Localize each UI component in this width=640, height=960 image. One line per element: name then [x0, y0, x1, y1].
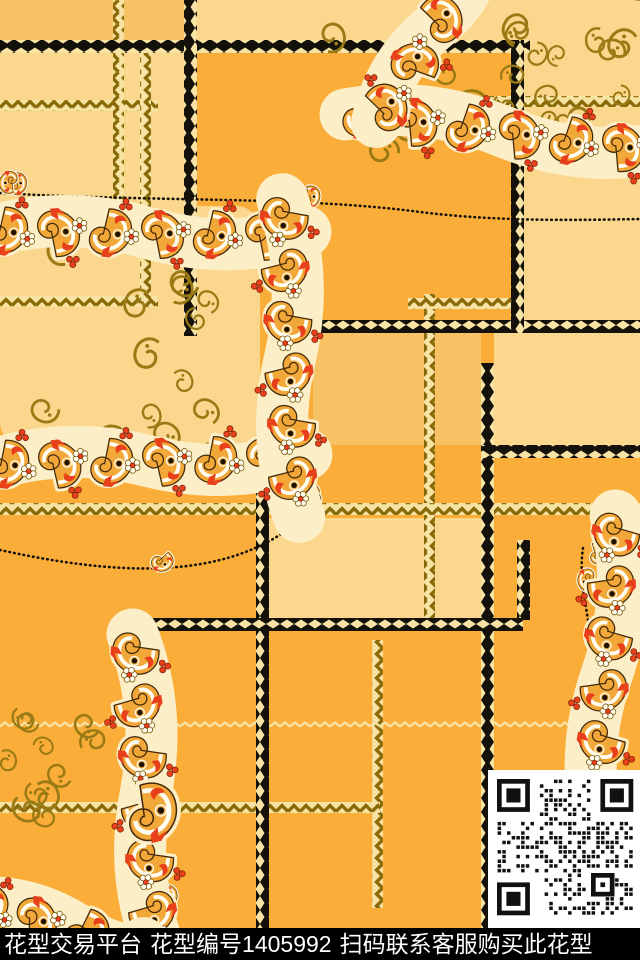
- pattern-preview-image: 花型交易平台花型编号1405992扫码联系客服购买此花型: [0, 0, 640, 960]
- watermark-bar: 花型交易平台花型编号1405992扫码联系客服购买此花型: [0, 928, 640, 960]
- platform-name: 花型交易平台: [4, 931, 142, 957]
- qr-code: [488, 770, 640, 928]
- textile-pattern-artwork: [0, 0, 640, 928]
- purchase-cta: 扫码联系客服购买此花型: [340, 931, 593, 957]
- pattern-number: 花型编号1405992: [150, 931, 332, 957]
